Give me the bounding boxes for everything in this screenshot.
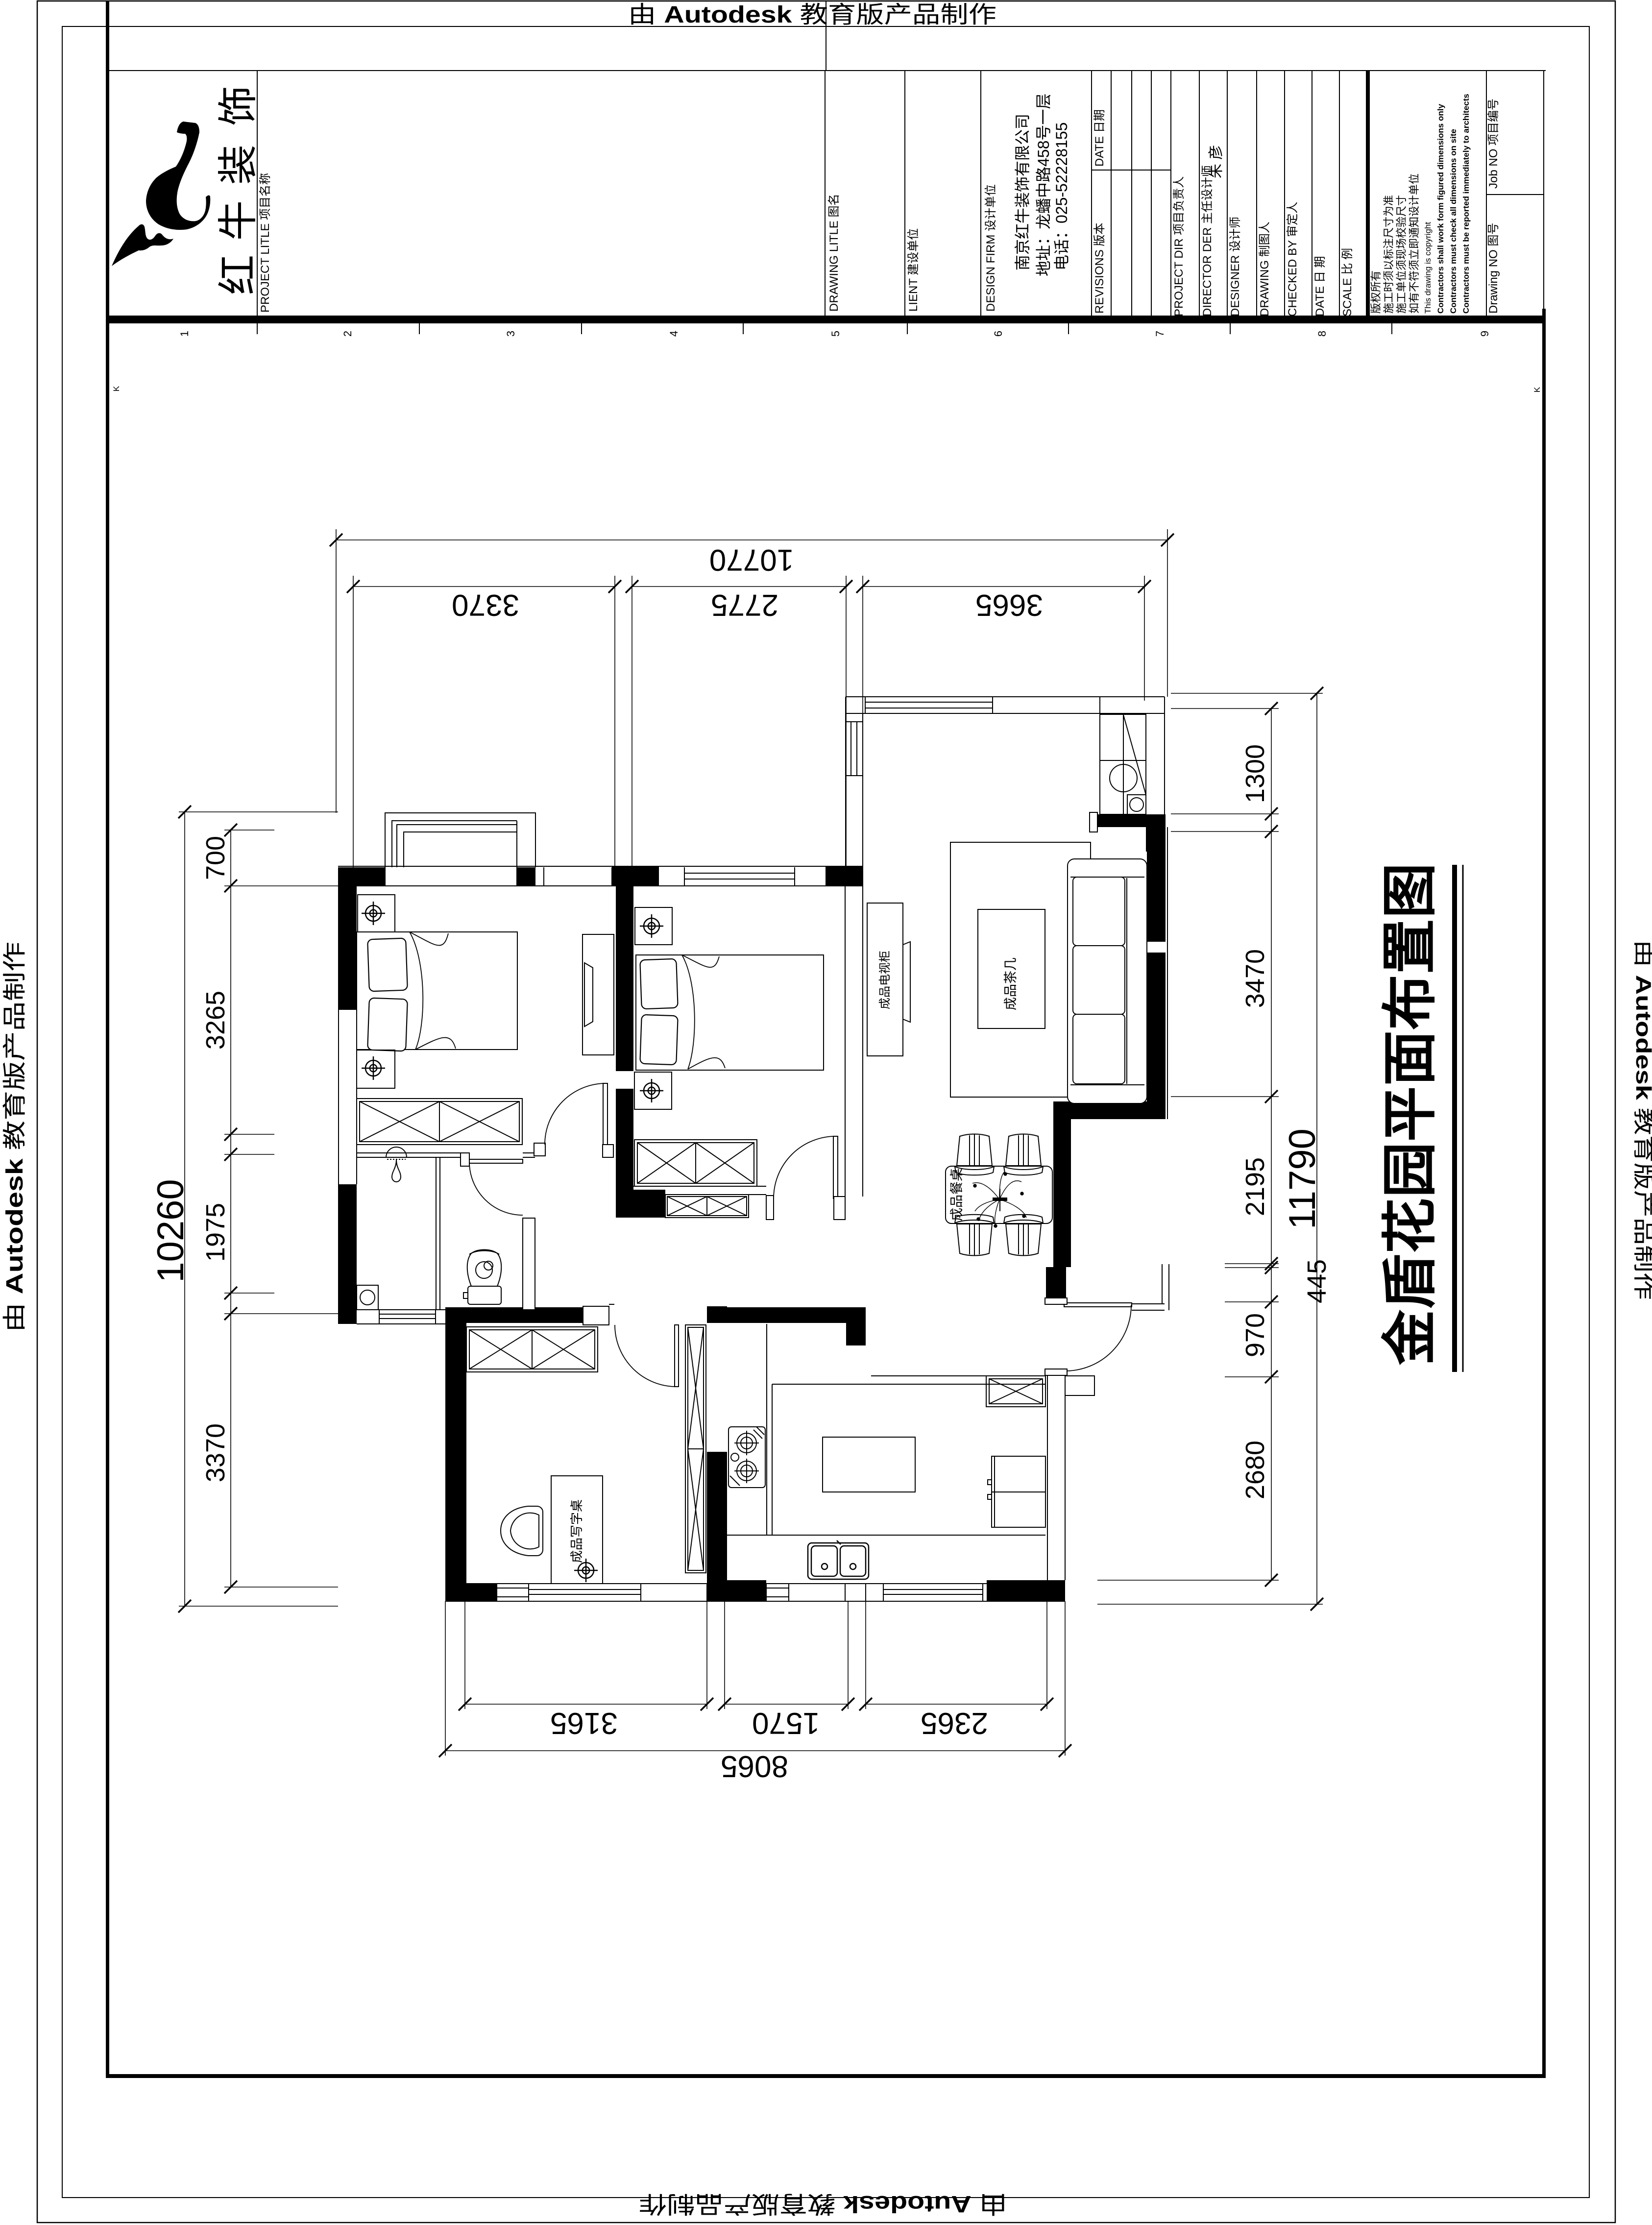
svg-text:1975: 1975 xyxy=(201,1203,230,1262)
svg-text:3370: 3370 xyxy=(452,588,519,622)
svg-text:成品茶几: 成品茶几 xyxy=(1003,957,1018,1010)
svg-text:电话：025-52228155: 电话：025-52228155 xyxy=(1053,122,1070,270)
svg-text:DRAWING 制图人: DRAWING 制图人 xyxy=(1258,221,1271,317)
svg-text:6: 6 xyxy=(992,331,1004,337)
svg-text:3470: 3470 xyxy=(1240,949,1270,1008)
svg-text:3165: 3165 xyxy=(550,1706,618,1740)
svg-text:3370: 3370 xyxy=(201,1423,230,1482)
svg-text:DESIGNER 设计师: DESIGNER 设计师 xyxy=(1229,217,1242,317)
svg-text:红: 红 xyxy=(216,255,261,295)
svg-text:4: 4 xyxy=(668,331,680,337)
svg-text:DATE 日 期: DATE 日 期 xyxy=(1313,256,1327,317)
svg-text:1300: 1300 xyxy=(1240,744,1270,803)
svg-text:10770: 10770 xyxy=(709,543,794,577)
svg-text:金盾花园平面布置图: 金盾花园平面布置图 xyxy=(1379,862,1441,1366)
svg-text:朱 彦: 朱 彦 xyxy=(1208,145,1224,178)
svg-text:1: 1 xyxy=(178,331,191,337)
svg-text:9: 9 xyxy=(1479,331,1491,337)
svg-text:LIENT 建设单位: LIENT 建设单位 xyxy=(907,228,920,312)
svg-text:7: 7 xyxy=(1154,331,1166,337)
svg-text:如有不符须立即通知设计单位: 如有不符须立即通知设计单位 xyxy=(1408,173,1420,314)
svg-text:牛: 牛 xyxy=(216,200,261,241)
svg-text:成品餐桌: 成品餐桌 xyxy=(949,1168,964,1221)
svg-text:由 Autodesk 教育版产品制作: 由 Autodesk 教育版产品制作 xyxy=(639,2191,1007,2217)
svg-text:2775: 2775 xyxy=(711,588,778,622)
svg-text:970: 970 xyxy=(1240,1313,1270,1357)
svg-text:5: 5 xyxy=(829,331,842,337)
svg-text:Contractors must be reported i: Contractors must be reported immediately… xyxy=(1461,94,1471,314)
svg-text:饰: 饰 xyxy=(216,86,261,126)
svg-text:PROJECT DIR 项目负责人: PROJECT DIR 项目负责人 xyxy=(1172,176,1186,317)
svg-text:南京红牛装饰有限公司: 南京红牛装饰有限公司 xyxy=(1014,114,1031,270)
svg-text:DRAWING LITLE 图名: DRAWING LITLE 图名 xyxy=(827,194,841,312)
svg-text:由 Autodesk 教育版产品制作: 由 Autodesk 教育版产品制作 xyxy=(1631,940,1652,1300)
svg-text:地址：龙蟠中路458号一层: 地址：龙蟠中路458号一层 xyxy=(1035,94,1052,276)
svg-text:PROJECT LITLE 项目名称: PROJECT LITLE 项目名称 xyxy=(259,173,272,313)
svg-text:版权所有: 版权所有 xyxy=(1370,270,1382,314)
svg-text:2195: 2195 xyxy=(1240,1157,1270,1216)
svg-text:3: 3 xyxy=(505,331,517,337)
svg-text:10260: 10260 xyxy=(150,1179,192,1282)
svg-text:由 Autodesk 教育版产品制作: 由 Autodesk 教育版产品制作 xyxy=(628,2,996,28)
svg-text:装: 装 xyxy=(216,145,261,185)
svg-text:K: K xyxy=(1532,387,1542,392)
svg-text:DESIGN FIRM 设计单位: DESIGN FIRM 设计单位 xyxy=(984,184,997,312)
svg-text:2680: 2680 xyxy=(1240,1441,1270,1499)
svg-text:由 Autodesk 教育版产品制作: 由 Autodesk 教育版产品制作 xyxy=(2,942,28,1332)
svg-text:2: 2 xyxy=(341,331,354,337)
svg-text:3265: 3265 xyxy=(201,991,230,1050)
svg-text:Contractors must check all dim: Contractors must check all dimensions on… xyxy=(1449,129,1458,314)
svg-text:成品电视柜: 成品电视柜 xyxy=(878,951,892,1009)
svg-text:Drawing NO 图号: Drawing NO 图号 xyxy=(1487,223,1500,314)
svg-text:445: 445 xyxy=(1302,1259,1332,1303)
svg-text:700: 700 xyxy=(201,836,230,880)
svg-text:施工时须以标注尺寸为准: 施工时须以标注尺寸为准 xyxy=(1383,195,1395,314)
svg-text:8065: 8065 xyxy=(721,1749,788,1783)
svg-text:8: 8 xyxy=(1316,331,1328,337)
svg-text:DIRECTOR DER 主任设计师: DIRECTOR DER 主任设计师 xyxy=(1201,165,1214,317)
svg-text:11790: 11790 xyxy=(1282,1128,1323,1229)
svg-text:2365: 2365 xyxy=(921,1706,988,1740)
svg-text:1570: 1570 xyxy=(752,1706,820,1740)
svg-text:CHECKED BY 审定人: CHECKED BY 审定人 xyxy=(1286,202,1299,317)
svg-text:SCALE 比 例: SCALE 比 例 xyxy=(1341,248,1354,317)
svg-text:施工单位须现场校验尺寸: 施工单位须现场校验尺寸 xyxy=(1395,195,1408,314)
svg-text:Contractors shall work form fi: Contractors shall work form figured dime… xyxy=(1436,104,1445,314)
svg-text:This drawing is copyright: This drawing is copyright xyxy=(1423,222,1433,314)
svg-text:3665: 3665 xyxy=(975,588,1043,622)
svg-text:Job NO 项目编号: Job NO 项目编号 xyxy=(1487,98,1500,189)
svg-text:K: K xyxy=(112,386,121,391)
svg-text:REVISIONS 版本: REVISIONS 版本 xyxy=(1093,223,1106,314)
svg-text:成品写字桌: 成品写字桌 xyxy=(569,1499,584,1563)
svg-text:DATE 日期: DATE 日期 xyxy=(1093,109,1106,167)
